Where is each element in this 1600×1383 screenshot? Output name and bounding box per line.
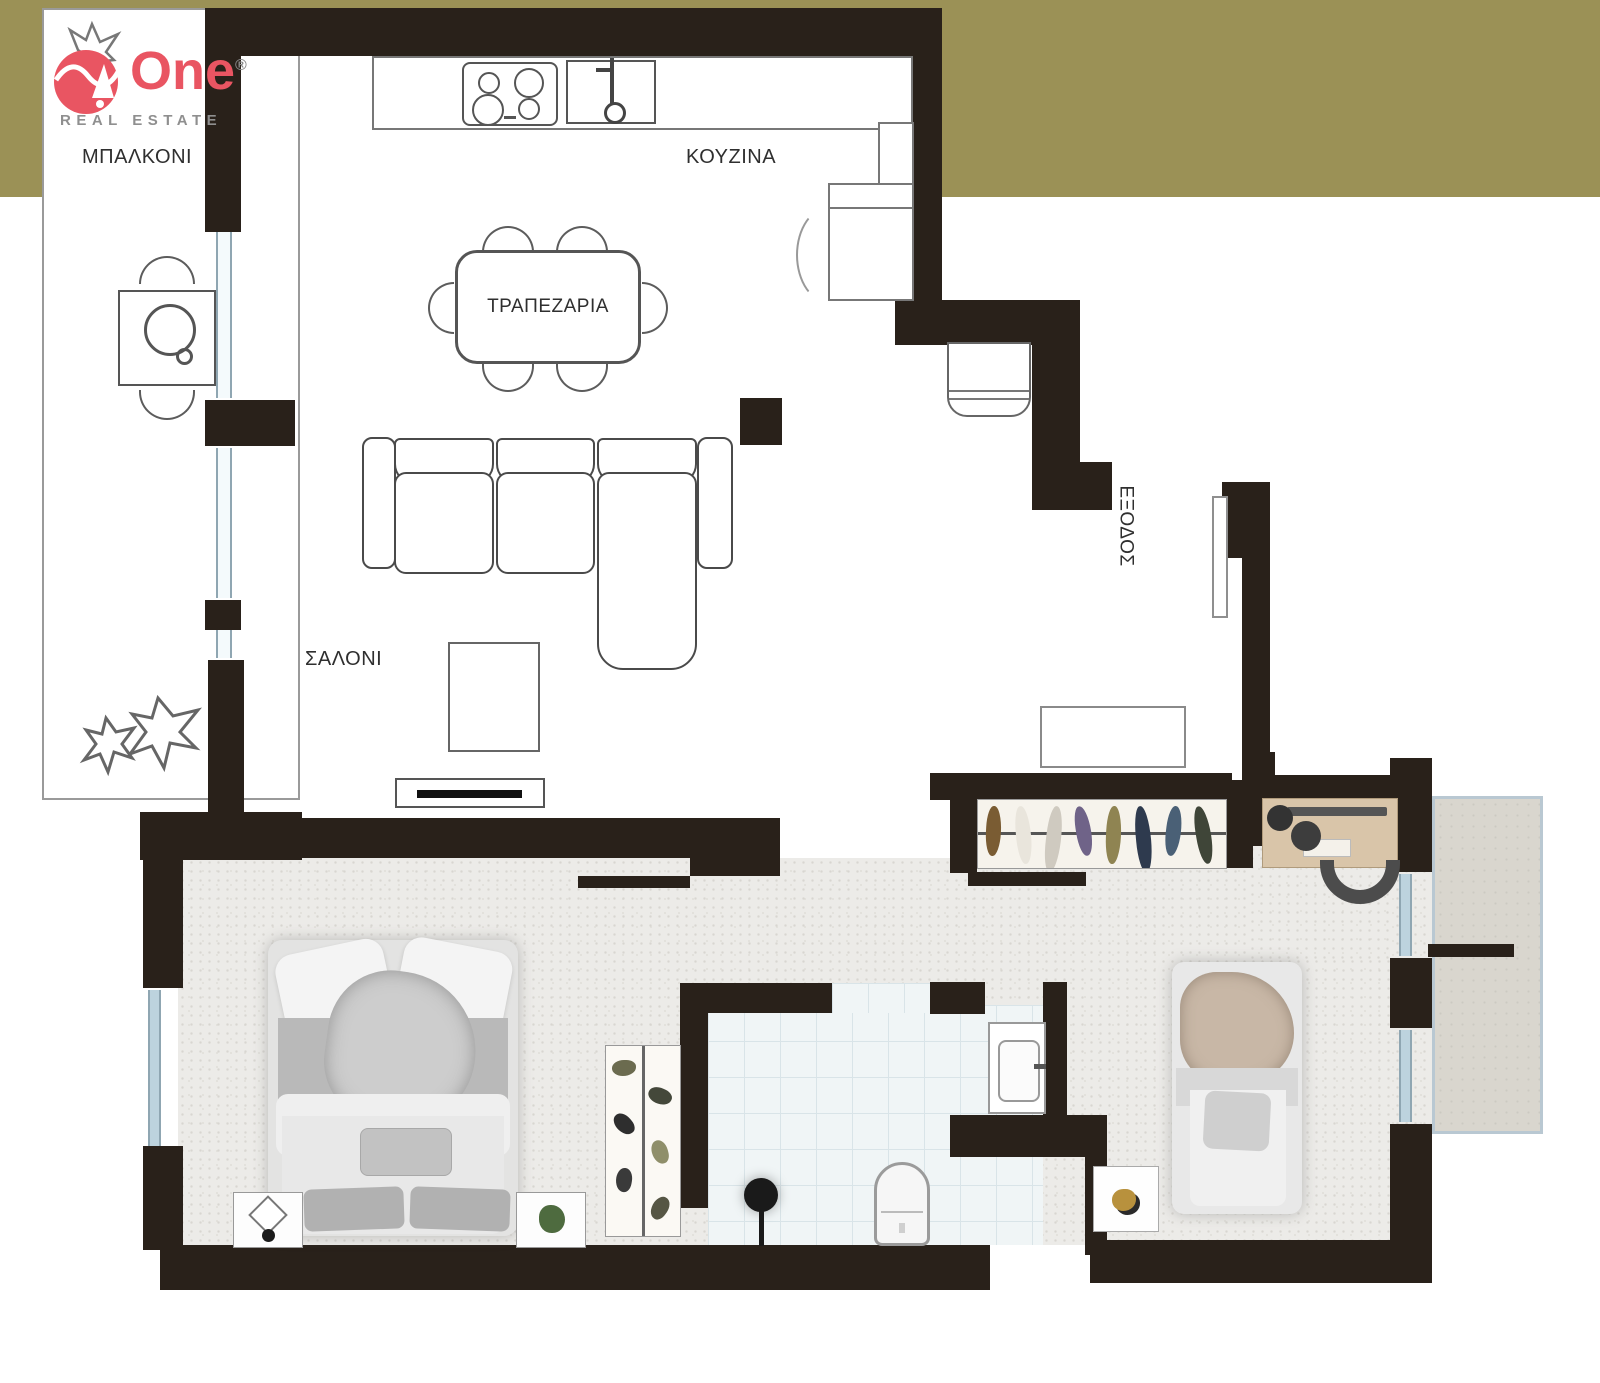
nightstand-lamp-icon — [262, 1229, 275, 1242]
window-balcony-3 — [216, 630, 232, 658]
wall-bedroom1-left-a — [143, 855, 183, 988]
wall-bedroom1-left-b — [143, 1146, 183, 1250]
window-bedroom1 — [148, 990, 161, 1146]
wall-balcony-stub — [205, 400, 295, 446]
toilet — [874, 1162, 930, 1246]
wall-entry-right-top — [1222, 482, 1270, 558]
wall-divider-lip — [578, 876, 690, 888]
wall-balcony-divider-c — [208, 660, 244, 812]
dining-chair-left — [428, 282, 454, 334]
burner-small-1 — [478, 72, 500, 94]
wardrobe-item — [646, 1084, 675, 1109]
closet — [977, 799, 1227, 869]
tv-console — [395, 778, 545, 808]
dining-chair-top-1 — [482, 226, 534, 252]
dining-chair-bottom-1 — [482, 364, 534, 392]
dining-table: ΤΡΑΠΕΖΑΡΙΑ — [455, 250, 641, 364]
brand-logo-icon — [48, 20, 128, 125]
stove — [462, 62, 558, 126]
dining-chair-right — [642, 282, 668, 334]
wall-entry-vertical — [1032, 345, 1080, 465]
wall-step-horizontal — [895, 300, 1080, 345]
stove-knob — [504, 116, 516, 119]
wall-top — [205, 8, 942, 56]
monitor — [1287, 807, 1387, 816]
wall-right-b — [1390, 958, 1432, 1028]
balcony-table — [118, 290, 216, 386]
faucet-handle — [596, 68, 612, 72]
window-right-2 — [1399, 1030, 1412, 1122]
drain — [604, 102, 626, 124]
wardrobe-item — [612, 1060, 636, 1076]
burner-small-2 — [518, 98, 540, 120]
wall-balcony-divider-b — [205, 600, 241, 630]
wardrobe-item — [647, 1194, 674, 1223]
clothing-item — [1014, 805, 1034, 864]
kitchen-sink — [566, 60, 656, 124]
wall-bath-left — [680, 983, 708, 1208]
sofa-right-arm — [697, 437, 733, 569]
clothing-item — [1104, 806, 1122, 865]
wall-right-c — [1390, 1124, 1432, 1244]
nightstand-lamp-icon — [1112, 1189, 1136, 1211]
brand-tagline: REAL ESTATE — [60, 112, 222, 129]
sofa-seat-1 — [394, 472, 494, 574]
entry-cabinet — [947, 342, 1031, 417]
nightstand-bed2 — [1093, 1166, 1159, 1232]
pillow — [1203, 1090, 1272, 1151]
dining-chair-top-2 — [556, 226, 608, 252]
room-label-dining: ΤΡΑΠΕΖΑΡΙΑ — [487, 296, 609, 318]
sink-basin — [998, 1040, 1040, 1102]
dining-chair-bottom-2 — [556, 364, 608, 392]
floor-plan-canvas: ΚΟΥΖΙΝΑ ΤΡΑΠΕΖΑΡΙΑ ΣΑΛΟΝΙ One® REAL ESTA… — [0, 0, 1600, 1383]
wall-bedroom2-bottom — [1090, 1240, 1432, 1283]
entry-console — [1040, 706, 1186, 768]
wall-bath-lower-step — [950, 1115, 1107, 1157]
wardrobe-items — [606, 1046, 680, 1236]
clothing-item — [1163, 805, 1184, 856]
balcony-small-dot — [176, 348, 193, 365]
center-cushion — [360, 1128, 452, 1176]
bed-single — [1172, 962, 1302, 1214]
sink — [988, 1022, 1046, 1114]
sofa-chaise — [597, 472, 697, 670]
wall-balcony-corner — [140, 812, 302, 860]
tv — [417, 790, 522, 798]
wall-closet-bottom-lip — [968, 872, 1086, 886]
window-right-1 — [1399, 874, 1412, 956]
burner-large-2 — [472, 94, 504, 126]
sofa-seat-2 — [496, 472, 595, 574]
room-label-living: ΣΑΛΟΝΙ — [305, 648, 382, 671]
room-label-balcony: ΜΠΑΛΚΟΝΙ — [82, 146, 192, 169]
wall-bath-top-right — [930, 982, 985, 1014]
nightstand-left — [233, 1192, 303, 1248]
burner-large-1 — [514, 68, 544, 98]
clothing-item — [1133, 805, 1154, 868]
room-label-exit: ΕΞΟΔΟΣ — [1115, 485, 1137, 566]
toilet-seat-line — [881, 1211, 923, 1213]
clothing-item — [1072, 805, 1095, 857]
coffee-table — [448, 642, 540, 752]
wall-bottom-main — [160, 1245, 990, 1290]
nightstand-right — [516, 1192, 586, 1248]
foot-pillow — [409, 1186, 510, 1231]
brand-logo: One® REAL ESTATE — [48, 20, 258, 140]
clothing-item — [1042, 805, 1065, 868]
window-balcony-1 — [216, 232, 232, 398]
wardrobe — [605, 1045, 681, 1237]
toilet-button — [899, 1223, 905, 1233]
entrance-door — [1212, 496, 1228, 618]
clothing-item — [1192, 805, 1216, 865]
kitchen-counter-right — [878, 122, 914, 186]
faucet-pipe — [610, 58, 614, 104]
shower-head-icon — [744, 1178, 778, 1212]
wall-living-stub-right — [740, 398, 782, 445]
clothing-item — [985, 806, 1003, 857]
sink-faucet — [1034, 1064, 1046, 1069]
plant-icon — [539, 1205, 565, 1233]
closet-items — [978, 800, 1226, 868]
desk-speaker-icon — [1291, 821, 1321, 851]
desk-lamp-icon — [1267, 805, 1293, 831]
window-balcony-2 — [216, 448, 232, 598]
cabinet-line-2 — [949, 398, 1029, 400]
cabinet-line-1 — [949, 390, 1029, 392]
wardrobe-item — [614, 1167, 634, 1193]
registered-mark: ® — [235, 57, 247, 74]
wall-living-bedroom-divider-right — [690, 818, 780, 876]
sofa-left-arm — [362, 437, 396, 569]
plant-icon — [78, 710, 143, 785]
room-label-kitchen: ΚΟΥΖΙΝΑ — [686, 146, 776, 169]
shower-stem — [759, 1208, 764, 1246]
desk — [1262, 798, 1398, 868]
bed-double — [268, 940, 518, 1236]
fridge-door-arc — [796, 206, 864, 304]
brand-name: One® — [130, 44, 247, 98]
wall-entry-step — [1032, 462, 1112, 510]
foot-pillow — [303, 1186, 404, 1231]
wall-closet-right — [1227, 780, 1253, 868]
wardrobe-item — [610, 1110, 638, 1139]
floor-bathroom-door — [832, 983, 930, 1013]
terrace — [1432, 796, 1543, 1134]
wardrobe-item — [649, 1138, 671, 1165]
terrace-divider-wall — [1428, 944, 1514, 957]
wall-closet-left — [950, 773, 977, 873]
wall-bath-right — [1043, 982, 1067, 1116]
